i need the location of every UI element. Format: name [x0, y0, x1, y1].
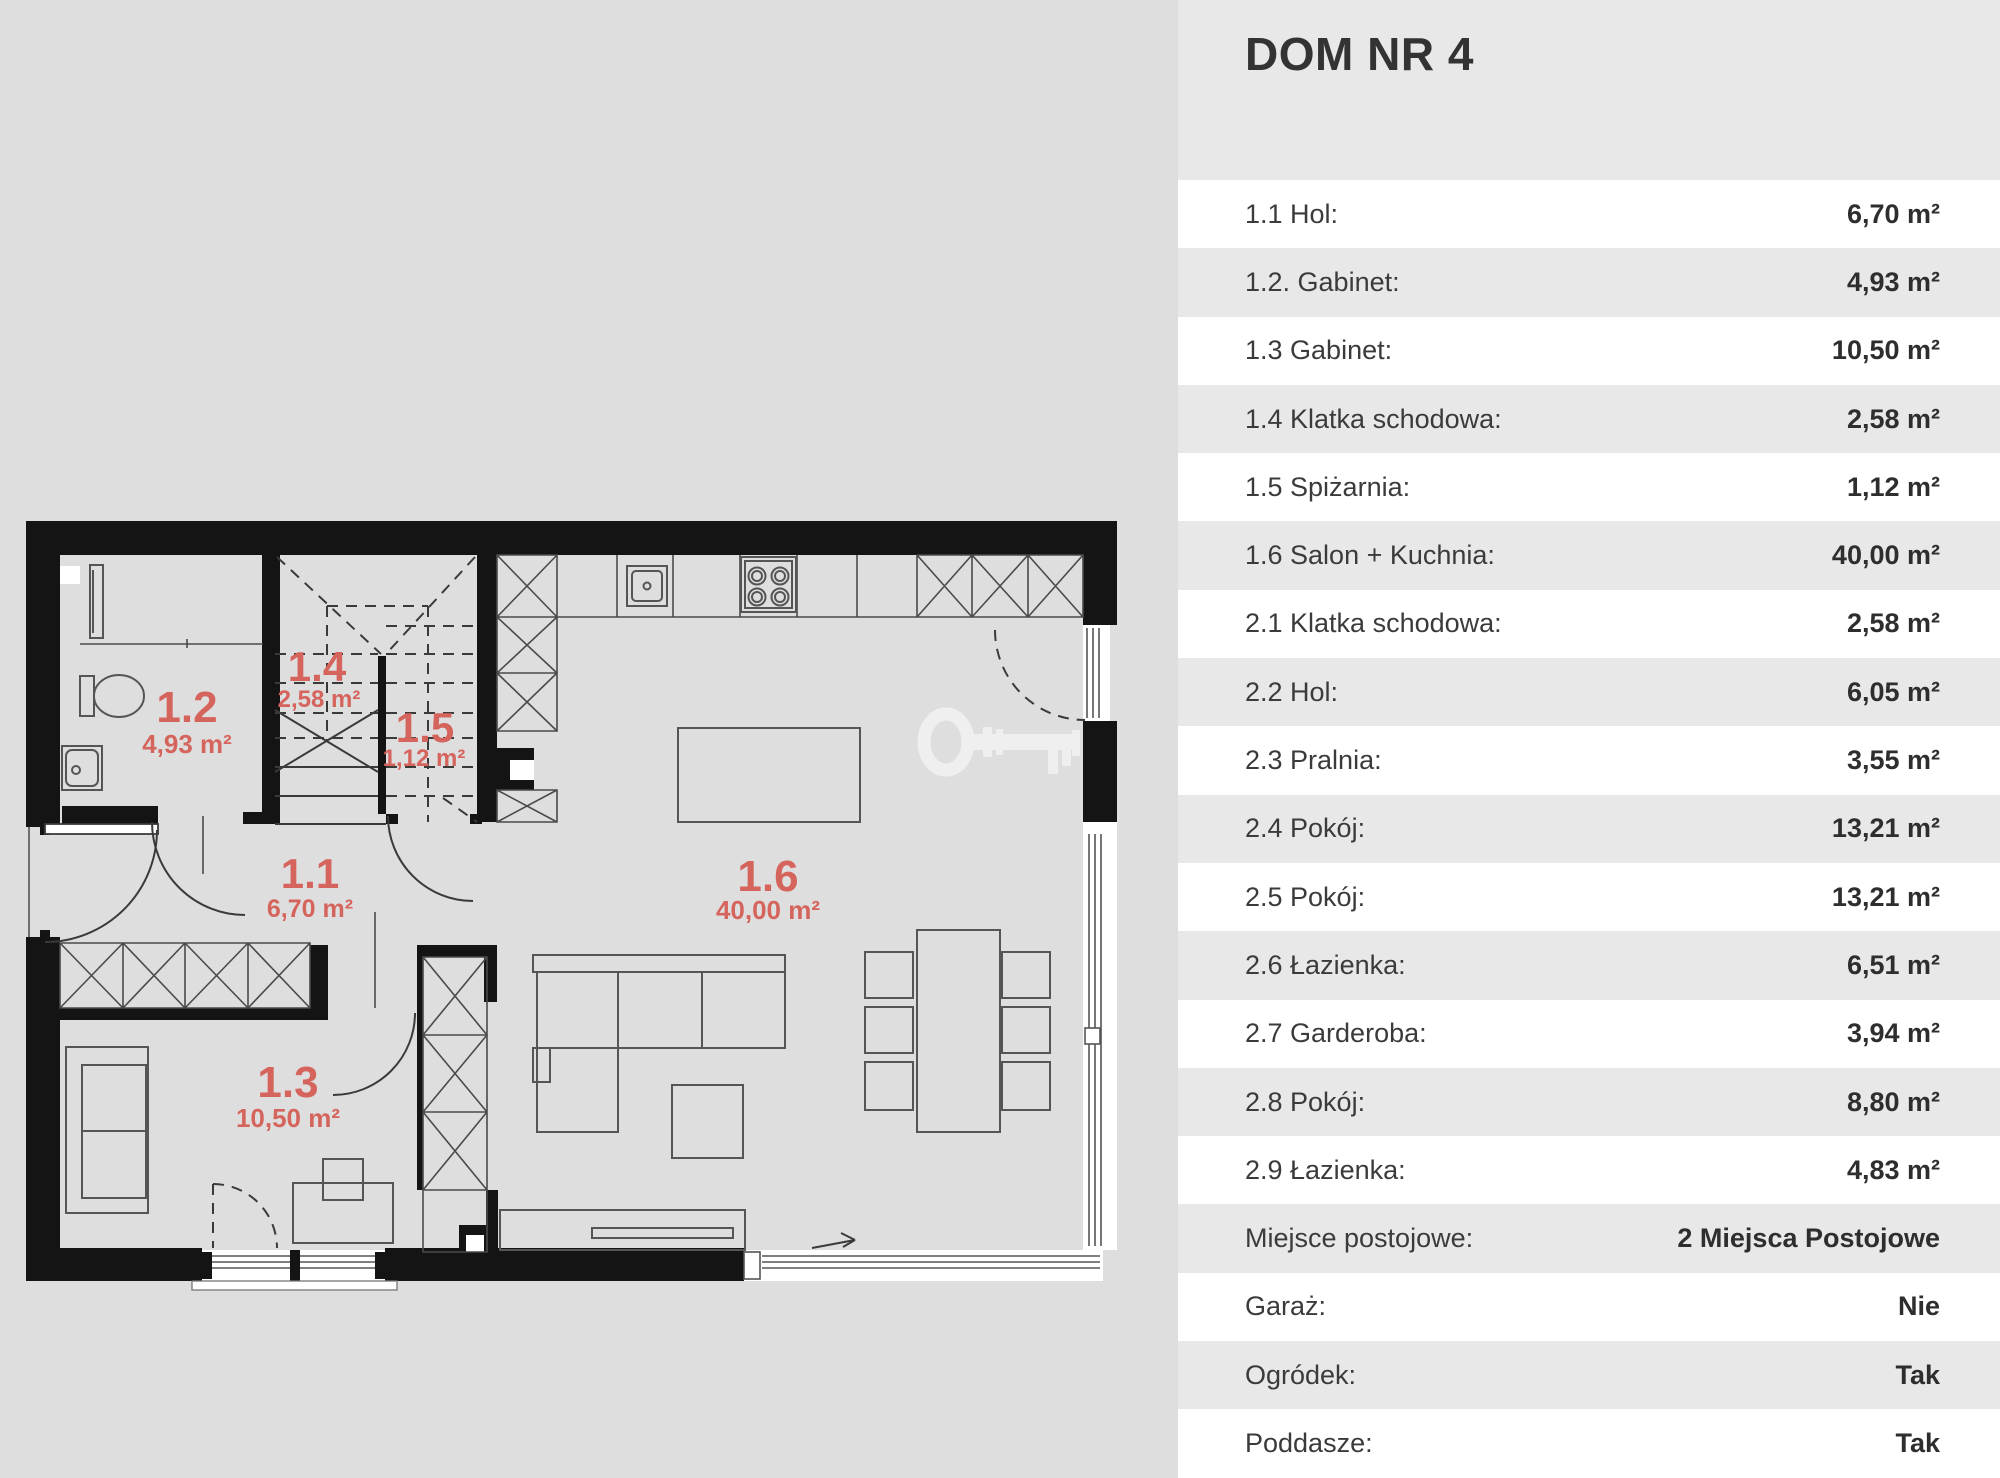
table-row: 1.6 Salon + Kuchnia:40,00 m²	[1178, 521, 2000, 589]
row-label: 2.5 Pokój:	[1245, 882, 1365, 913]
row-label: 2.8 Pokój:	[1245, 1087, 1365, 1118]
row-label: 1.6 Salon + Kuchnia:	[1245, 540, 1495, 571]
row-value: 3,94 m²	[1847, 1018, 1940, 1049]
row-label: Miejsce postojowe:	[1245, 1223, 1473, 1254]
row-value: 4,93 m²	[1847, 267, 1940, 298]
row-label: Poddasze:	[1245, 1428, 1373, 1459]
row-label: 1.3 Gabinet:	[1245, 335, 1392, 366]
row-value: 13,21 m²	[1832, 882, 1940, 913]
entry-door-right	[995, 625, 1110, 721]
table-row: Poddasze:Tak	[1178, 1409, 2000, 1477]
info-panel: DOM NR 4 1.1 Hol:6,70 m²1.2. Gabinet:4,9…	[1178, 0, 2000, 1477]
room-label-1-1: 1.1	[281, 850, 339, 897]
row-label: 2.3 Pralnia:	[1245, 745, 1382, 776]
table-row: 1.4 Klatka schodowa:2,58 m²	[1178, 385, 2000, 453]
table-row: 2.1 Klatka schodowa:2,58 m²	[1178, 590, 2000, 658]
kitchen-island	[678, 728, 860, 822]
bedroom-furniture	[66, 1047, 393, 1243]
table-row: Ogródek:Tak	[1178, 1341, 2000, 1409]
table-row: 1.5 Spiżarnia:1,12 m²	[1178, 453, 2000, 521]
room-area-1-6: 40,00 m²	[716, 895, 820, 925]
sliding-window-bottom	[744, 1250, 1103, 1281]
table-row: 2.7 Garderoba:3,94 m²	[1178, 1000, 2000, 1068]
room-label-1-2: 1.2	[156, 683, 217, 732]
table-row: 2.8 Pokój:8,80 m²	[1178, 1068, 2000, 1136]
row-value: 3,55 m²	[1847, 745, 1940, 776]
row-value: 10,50 m²	[1832, 335, 1940, 366]
room-label-1-6: 1.6	[737, 852, 798, 901]
row-value: 40,00 m²	[1832, 540, 1940, 571]
room-label-1-4: 1.4	[288, 643, 347, 690]
sofa	[533, 955, 785, 1132]
row-value: 13,21 m²	[1832, 813, 1940, 844]
room-label-1-3: 1.3	[257, 1058, 318, 1107]
row-label: 2.9 Łazienka:	[1245, 1155, 1406, 1186]
room-area-1-5: 1,12 m²	[383, 745, 466, 772]
room-area-1-1: 6,70 m²	[267, 895, 353, 923]
table-row: 2.9 Łazienka:4,83 m²	[1178, 1136, 2000, 1204]
kitchen-counter	[557, 555, 917, 617]
row-value: Nie	[1898, 1291, 1940, 1322]
window-bottom-left	[192, 1250, 397, 1290]
row-label: 2.7 Garderoba:	[1245, 1018, 1427, 1049]
table-row: Garaż:Nie	[1178, 1273, 2000, 1341]
room-area-1-4: 2,58 m²	[278, 686, 361, 713]
stove-icon	[741, 557, 796, 612]
row-label: 2.6 Łazienka:	[1245, 950, 1406, 981]
tv-unit	[500, 1210, 745, 1250]
row-value: Tak	[1895, 1360, 1940, 1391]
row-label: Ogródek:	[1245, 1360, 1356, 1391]
entrance-arrow-icon	[812, 1233, 855, 1248]
row-value: 6,05 m²	[1847, 677, 1940, 708]
wardrobe-hatching	[60, 555, 1083, 1252]
row-label: 1.2. Gabinet:	[1245, 267, 1400, 298]
row-label: 2.4 Pokój:	[1245, 813, 1365, 844]
row-label: 1.4 Klatka schodowa:	[1245, 404, 1502, 435]
row-value: 1,12 m²	[1847, 472, 1940, 503]
floor-plan: 1.1 6,70 m² 1.2 4,93 m² 1.3 10,50 m² 1.4…	[0, 0, 1178, 1477]
row-label: 2.2 Hol:	[1245, 677, 1338, 708]
room-table: 1.1 Hol:6,70 m²1.2. Gabinet:4,93 m²1.3 G…	[1178, 180, 2000, 1478]
table-row: 1.3 Gabinet:10,50 m²	[1178, 317, 2000, 385]
row-value: 8,80 m²	[1847, 1087, 1940, 1118]
table-row: 2.3 Pralnia:3,55 m²	[1178, 726, 2000, 794]
row-value: 6,70 m²	[1847, 199, 1940, 230]
window-right-wall	[1083, 822, 1117, 1250]
row-value: 6,51 m²	[1847, 950, 1940, 981]
dining-set	[865, 930, 1050, 1132]
table-row: 2.5 Pokój:13,21 m²	[1178, 863, 2000, 931]
exterior-walls	[26, 521, 1117, 1281]
row-label: 1.1 Hol:	[1245, 199, 1338, 230]
row-value: 4,83 m²	[1847, 1155, 1940, 1186]
table-row: 2.6 Łazienka:6,51 m²	[1178, 931, 2000, 999]
key-watermark-icon	[924, 714, 1080, 774]
row-value: 2,58 m²	[1847, 608, 1940, 639]
row-value: 2,58 m²	[1847, 404, 1940, 435]
page-title: DOM NR 4	[1245, 27, 1474, 81]
table-row: Miejsce postojowe:2 Miejsca Postojowe	[1178, 1204, 2000, 1272]
row-label: 2.1 Klatka schodowa:	[1245, 608, 1502, 639]
row-value: 2 Miejsca Postojowe	[1677, 1223, 1940, 1254]
room-area-1-3: 10,50 m²	[236, 1103, 340, 1133]
row-label: Garaż:	[1245, 1291, 1326, 1322]
row-label: 1.5 Spiżarnia:	[1245, 472, 1410, 503]
room-label-1-5: 1.5	[396, 704, 454, 751]
table-row: 2.2 Hol:6,05 m²	[1178, 658, 2000, 726]
coffee-table	[672, 1085, 743, 1158]
room-area-1-2: 4,93 m²	[142, 729, 232, 759]
table-row: 2.4 Pokój:13,21 m²	[1178, 795, 2000, 863]
entrance-door-left	[29, 824, 158, 942]
table-row: 1.2. Gabinet:4,93 m²	[1178, 248, 2000, 316]
table-row: 1.1 Hol:6,70 m²	[1178, 180, 2000, 248]
kitchen-sink-icon	[627, 566, 667, 606]
row-value: Tak	[1895, 1428, 1940, 1459]
